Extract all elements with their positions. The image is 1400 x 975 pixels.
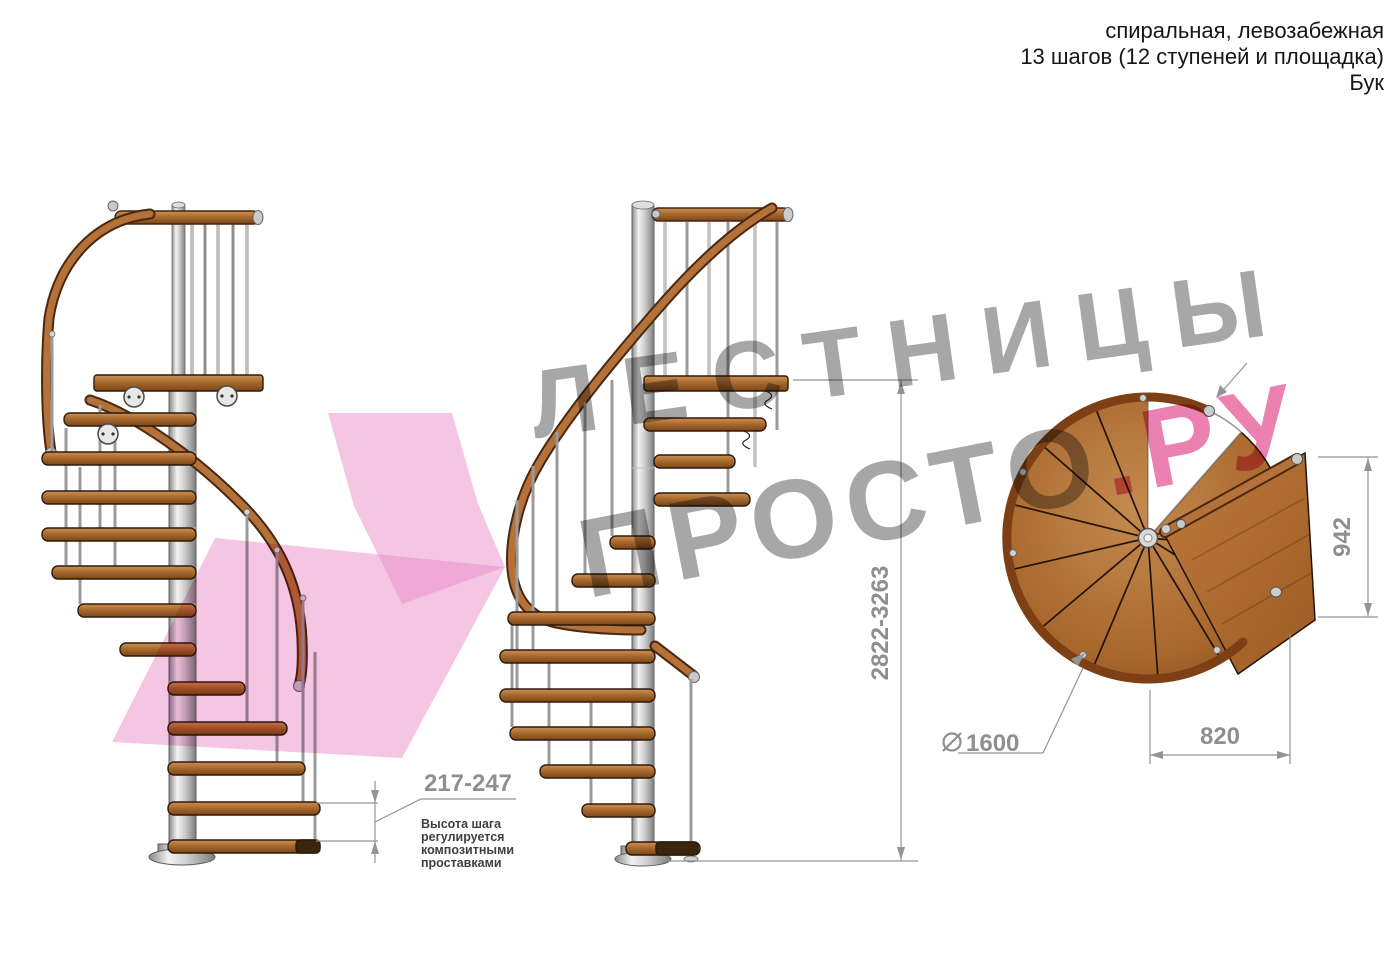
title-type: спиральная, левозабежная — [1020, 18, 1384, 44]
total-height-label: 2822-3263 — [867, 566, 894, 681]
drawing-canvas: 2822-3263 217-247 942 820 1600 Высота ша… — [0, 0, 1400, 975]
step-height-note: Высота шага регулируется композитными пр… — [421, 817, 514, 870]
left-platform-railing — [115, 211, 263, 377]
platform-depth-label: 820 — [1200, 723, 1240, 750]
step-height-label: 217-247 — [424, 770, 512, 797]
diameter-label: 1600 — [966, 730, 1019, 757]
note-line-2: регулируется — [421, 830, 504, 844]
note-line-1: Высота шага — [421, 817, 502, 831]
note-line-3: композитными — [421, 843, 514, 857]
note-line-4: проставками — [421, 856, 502, 870]
title-steps: 13 шагов (12 ступеней и площадка) — [1020, 44, 1384, 70]
front-view-staircase — [42, 201, 320, 865]
platform-width-label: 942 — [1329, 517, 1356, 557]
title-material: Бук — [1020, 70, 1384, 96]
title-block: спиральная, левозабежная 13 шагов (12 ст… — [1020, 18, 1384, 96]
diameter-symbol — [943, 733, 961, 751]
middle-lower-rail — [655, 646, 700, 862]
